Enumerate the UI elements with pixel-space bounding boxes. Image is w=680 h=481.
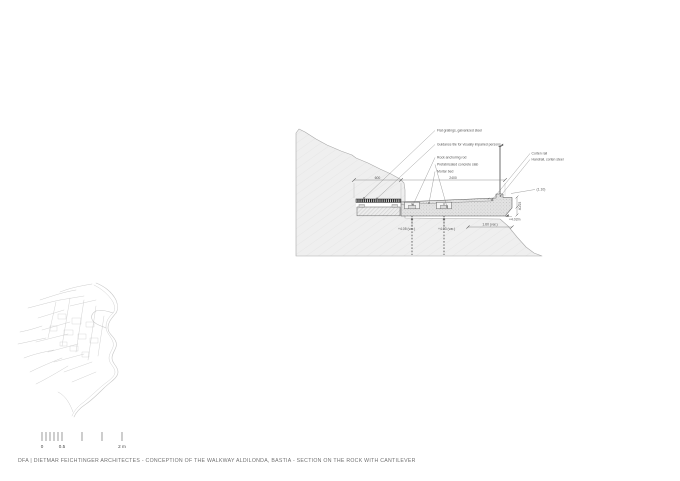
dim-cantilever: 1.60 (var.) [482,222,497,226]
steel-grating [356,199,401,202]
annotation-corten-rail: Corten rail [532,152,548,156]
scale-label-zero: 0 [41,444,44,449]
annotation-guidance-tile: Guidance tile for visually impaired pers… [437,143,501,147]
map-coastline [74,313,118,417]
section-drawing: 600 2400 Flat gratings, galvanized steel… [296,129,564,256]
level-anchor-left: +4.05 (var.) [398,227,415,231]
annotation-handrail: Handrail, corten steel [532,158,564,162]
dim-top-right: 2400 [449,176,457,180]
drawing-sheet: 600 2400 Flat gratings, galvanized steel… [0,0,680,481]
scale-label-half: 0.5 [59,444,66,449]
drawing-canvas: 600 2400 Flat gratings, galvanized steel… [0,0,680,481]
level-anchor-mid: +4.03 (var.) [438,227,455,231]
map-jetty [96,283,118,313]
footer-caption: DFA | DIETMAR FEICHTINGER ARCHITECTES - … [18,458,416,464]
handrail [488,144,503,200]
level-slab-bottom: +4.02m [509,217,521,221]
support-pad [392,205,398,208]
dim-railing-height: (1.10) [537,188,546,192]
dim-slab-edge: 40/25 [518,202,522,211]
scale-label-two-m: 2 m [118,444,126,449]
annotation-anchoring-rod: Rock anchoring rod [437,156,467,160]
leaders-right [491,154,535,201]
site-map [18,283,118,417]
dim-top-left: 600 [375,176,381,180]
annotation-mortar-bed: Mortar bed [437,170,454,174]
scale-bar: 0 0.5 2 m [41,432,126,449]
support-pad [359,205,365,208]
support-block [357,207,400,216]
annotation-concrete-slab: Prefabricated concrete slab [437,163,478,167]
annotation-gratings: Flat gratings, galvanized steel [437,129,482,133]
